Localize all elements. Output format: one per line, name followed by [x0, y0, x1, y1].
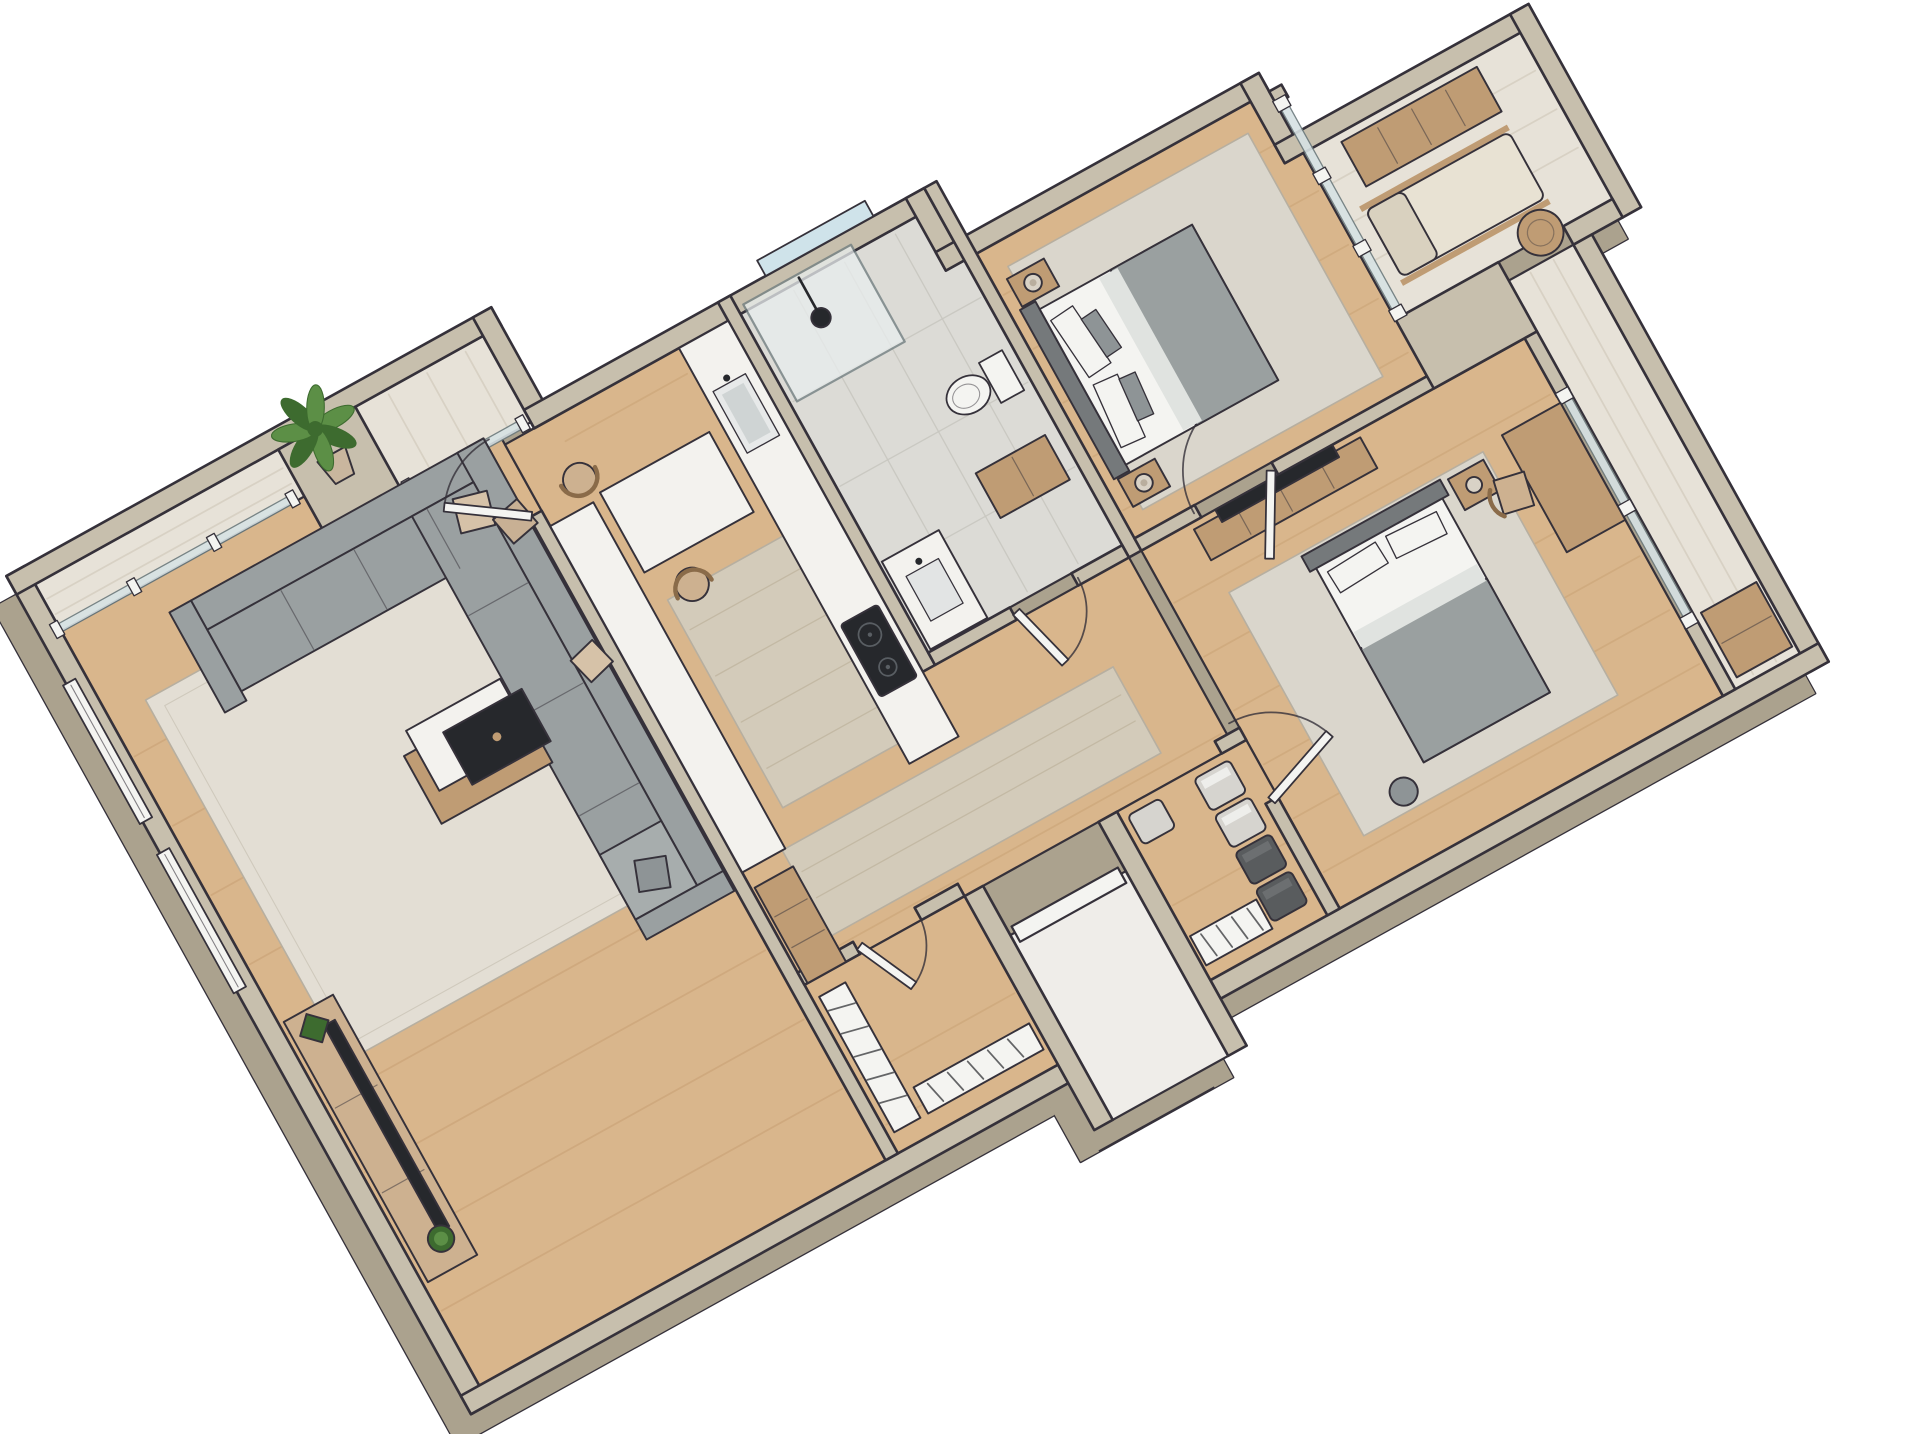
decor-tray-green [300, 1014, 328, 1042]
floor-plan-svg [0, 0, 1920, 1434]
floor-plan-canvas [0, 0, 1920, 1434]
door-leaf-master [1265, 471, 1275, 559]
sofa-pillow [634, 856, 670, 892]
